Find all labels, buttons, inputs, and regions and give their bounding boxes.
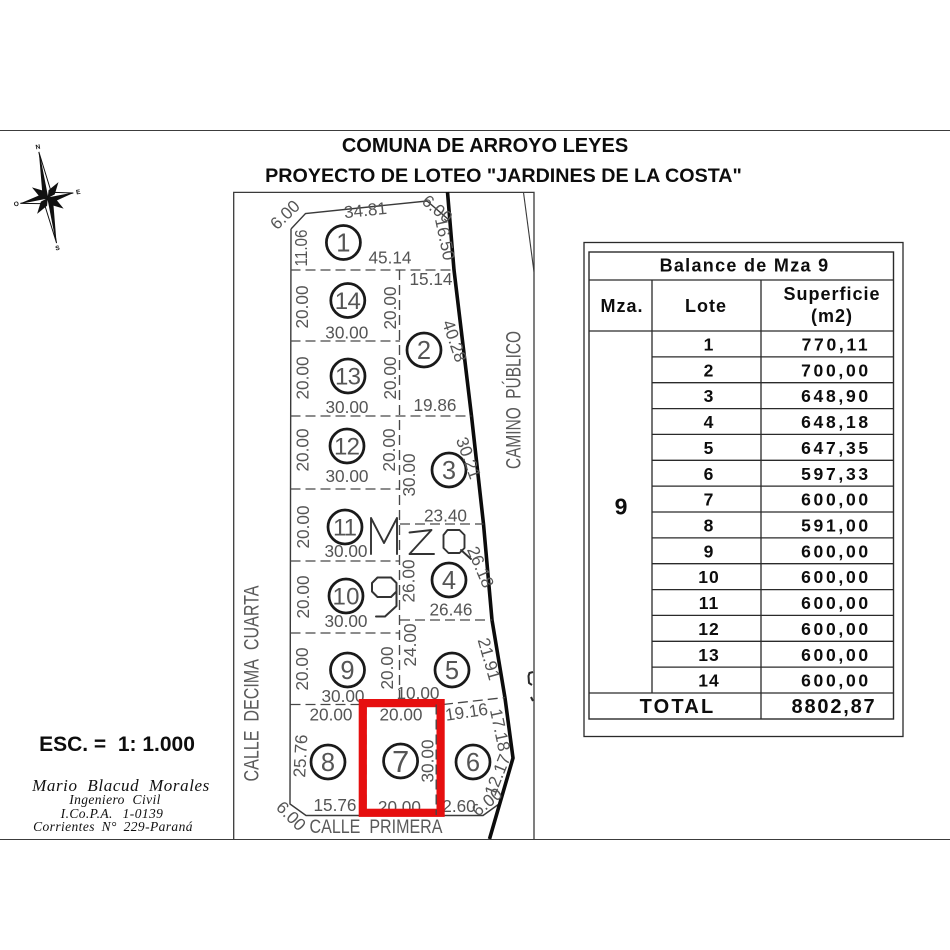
svg-text:600,00: 600,00	[801, 490, 871, 510]
svg-text:20.00: 20.00	[379, 428, 399, 471]
svg-text:12: 12	[334, 434, 360, 461]
svg-text:8: 8	[321, 749, 335, 777]
svg-text:23.40: 23.40	[424, 506, 467, 526]
svg-text:648,90: 648,90	[801, 386, 871, 406]
svg-text:1: 1	[704, 335, 715, 355]
svg-text:(m2): (m2)	[811, 306, 853, 326]
svg-text:16.50: 16.50	[431, 216, 460, 262]
svg-text:8: 8	[704, 516, 715, 536]
svg-text:20.00: 20.00	[293, 575, 313, 618]
svg-text:CAMINO PÚBLICO: CAMINO PÚBLICO	[503, 331, 526, 469]
svg-text:Mza.: Mza.	[600, 296, 643, 316]
svg-text:20.00: 20.00	[379, 705, 422, 725]
svg-text:648,18: 648,18	[801, 412, 871, 432]
svg-text:6: 6	[466, 749, 480, 777]
svg-text:21.91: 21.91	[474, 636, 505, 683]
svg-text:6: 6	[704, 464, 715, 484]
svg-text:9: 9	[615, 494, 628, 520]
svg-text:Balance de Mza 9: Balance de Mza 9	[660, 256, 830, 276]
svg-text:N: N	[35, 144, 41, 152]
svg-text:13: 13	[335, 364, 361, 391]
svg-text:40.28: 40.28	[438, 317, 471, 364]
svg-text:15.14: 15.14	[409, 269, 452, 289]
svg-text:30.21: 30.21	[452, 434, 486, 481]
svg-text:O: O	[13, 201, 19, 209]
svg-text:30.00: 30.00	[324, 541, 367, 561]
svg-text:E: E	[76, 189, 82, 197]
svg-text:1: 1	[336, 230, 350, 258]
svg-text:5: 5	[445, 657, 459, 685]
svg-text:600,00: 600,00	[801, 645, 871, 665]
svg-text:591,00: 591,00	[801, 516, 871, 536]
svg-text:770,11: 770,11	[802, 335, 871, 355]
svg-text:6.00: 6.00	[272, 797, 310, 835]
svg-text:20.00: 20.00	[292, 428, 312, 471]
svg-text:20.00: 20.00	[292, 285, 312, 328]
svg-text:597,33: 597,33	[801, 464, 871, 484]
svg-text:15.76: 15.76	[313, 795, 356, 815]
svg-text:19.86: 19.86	[413, 395, 456, 415]
svg-text:20.00: 20.00	[292, 647, 312, 690]
svg-text:647,35: 647,35	[801, 438, 871, 458]
svg-text:2: 2	[417, 337, 431, 365]
svg-text:11: 11	[333, 515, 357, 542]
svg-text:20.00: 20.00	[380, 356, 400, 399]
svg-text:20.00: 20.00	[293, 505, 313, 548]
svg-text:20.00: 20.00	[292, 356, 312, 399]
svg-text:Superficie: Superficie	[783, 284, 880, 304]
svg-text:30.00: 30.00	[321, 686, 364, 706]
svg-text:30.00: 30.00	[417, 739, 437, 782]
svg-text:6.00: 6.00	[266, 196, 304, 234]
svg-text:600,00: 600,00	[801, 593, 871, 613]
svg-text:30.00: 30.00	[324, 611, 367, 631]
svg-text:CALLE PRIMERA: CALLE PRIMERA	[310, 817, 443, 838]
svg-text:25.76: 25.76	[289, 734, 311, 778]
svg-text:7: 7	[392, 744, 409, 779]
svg-text:26.00: 26.00	[398, 559, 418, 602]
svg-text:600,00: 600,00	[801, 541, 871, 561]
svg-text:30.00: 30.00	[325, 397, 368, 417]
svg-text:3: 3	[704, 386, 715, 406]
svg-text:2: 2	[704, 360, 715, 380]
svg-text:12: 12	[698, 619, 719, 639]
svg-text:30.00: 30.00	[399, 453, 419, 496]
svg-text:9: 9	[704, 541, 715, 561]
svg-text:30.00: 30.00	[325, 466, 368, 486]
svg-text:24.00: 24.00	[400, 623, 420, 666]
svg-text:S: S	[55, 245, 61, 253]
svg-text:20.00: 20.00	[380, 286, 400, 329]
svg-text:20.00: 20.00	[309, 705, 352, 725]
svg-text:600,00: 600,00	[801, 567, 871, 587]
svg-text:11: 11	[699, 593, 720, 613]
svg-text:13: 13	[698, 645, 719, 665]
svg-text:600,00: 600,00	[801, 619, 871, 639]
svg-text:Lote: Lote	[685, 296, 727, 316]
svg-text:14: 14	[698, 671, 719, 691]
svg-text:8802,87: 8802,87	[792, 696, 877, 718]
svg-text:14: 14	[335, 288, 361, 315]
svg-text:10: 10	[698, 567, 719, 587]
svg-text:4: 4	[442, 567, 456, 595]
svg-text:45.14: 45.14	[368, 248, 411, 268]
svg-text:10: 10	[333, 584, 360, 611]
svg-text:3: 3	[442, 457, 456, 485]
svg-text:11.06: 11.06	[291, 230, 311, 267]
svg-text:20.00: 20.00	[377, 646, 397, 689]
svg-text:26.18: 26.18	[463, 543, 498, 590]
svg-text:26.46: 26.46	[429, 600, 472, 620]
svg-text:600,00: 600,00	[801, 671, 871, 691]
svg-text:30.00: 30.00	[325, 323, 368, 343]
svg-text:4: 4	[704, 412, 715, 432]
svg-text:700,00: 700,00	[801, 360, 871, 380]
svg-text:TOTAL: TOTAL	[640, 696, 716, 718]
svg-text:19.16: 19.16	[444, 699, 489, 725]
svg-text:CALLE DECIMA CUARTA: CALLE DECIMA CUARTA	[241, 586, 264, 782]
svg-text:34.81: 34.81	[343, 198, 388, 222]
svg-text:9: 9	[340, 657, 354, 685]
svg-text:5: 5	[704, 438, 715, 458]
svg-text:7: 7	[704, 490, 715, 510]
svg-text:17.18: 17.18	[486, 707, 515, 753]
